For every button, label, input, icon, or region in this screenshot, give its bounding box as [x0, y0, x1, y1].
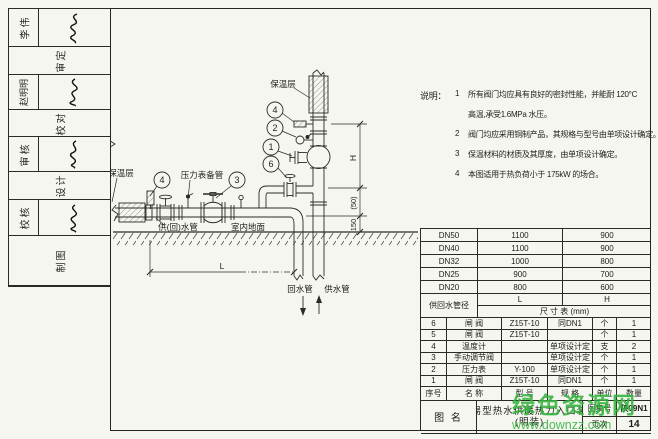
l-dimension-line	[147, 240, 297, 277]
signature-scribble-icon	[63, 12, 87, 44]
titleblock-role-text: 审定	[52, 49, 67, 73]
table-cell: 1	[617, 376, 651, 388]
titleblock-name: 赵明明	[9, 75, 39, 109]
table-cell: Z15T-10	[502, 318, 548, 330]
table-cell: 单项设计定	[548, 341, 593, 353]
table-header-rows: 供回水管径 L H 尺 寸 表 (mm)	[421, 294, 651, 318]
table-cell: 同DN1	[548, 318, 593, 330]
callout-number: 3	[234, 175, 239, 185]
page-number-label: 页次	[583, 417, 617, 434]
table-row: DN50 1100 900	[421, 229, 651, 242]
titleblock-name-text: 李伟	[16, 16, 31, 40]
riser-insulation-jacket	[309, 76, 328, 113]
table-row: 尺 寸 表 (mm)	[478, 306, 651, 318]
table-corner-header: 供回水管径	[421, 294, 478, 318]
titleblock-role: 校对	[9, 110, 110, 136]
tables-block: DN50 1100 900 DN40 1100 900 DN32 1000 80…	[420, 228, 651, 431]
dimension-table: DN50 1100 900 DN40 1100 900 DN32 1000 80…	[421, 229, 651, 318]
table-row: L H	[478, 294, 651, 306]
titleblock-role: 设计	[9, 172, 110, 199]
table-cell: DN20	[421, 281, 478, 294]
table-col-header-h: H	[563, 294, 651, 306]
table-cell: DN25	[421, 268, 478, 281]
table-cell: 2	[617, 341, 651, 353]
table-cell: 支	[593, 341, 617, 353]
table-cell: 900	[478, 268, 563, 281]
callout-number: 1	[268, 142, 273, 152]
callout-number: 6	[268, 159, 273, 169]
signature-scribble-icon	[63, 77, 87, 107]
note-3-text: 保温材料的材质及其厚度，由单项设计确定。	[468, 149, 622, 160]
flange-pair	[179, 205, 182, 220]
note-2-number: 2	[455, 129, 459, 138]
table-header-row: 序号 名 称 型 号 规 格 单位 数量	[421, 387, 651, 401]
note-2-text: 阀门均应采用铜制产品，其规格与型号由单项设计确定。	[468, 129, 658, 140]
titleblock-name-text: 校核	[16, 206, 31, 230]
titleblock-role: 审定	[9, 47, 110, 74]
page-number-row: 页次 14	[583, 417, 651, 434]
bypass-branch-pipe	[259, 186, 313, 208]
table-col-header: 型 号	[502, 387, 548, 401]
table-cell: DN40	[421, 242, 478, 255]
label-return-pipe: 回水管	[287, 284, 313, 294]
titleblock-row: 校核	[9, 200, 110, 236]
gate-valve-riser	[290, 151, 307, 164]
table-row: 4 温度计 单项设计定 支 2	[421, 341, 651, 353]
titleblock-role-text: 校对	[52, 111, 67, 135]
table-cell: 个	[593, 330, 617, 342]
title-bar-right: 图集号 陕09N1 页次 14	[583, 401, 651, 434]
titleblock-row: 审核	[9, 137, 110, 172]
table-cell: 单项设计定	[548, 364, 593, 376]
note-4-text: 本图适用于热负荷小于 175kW 的场合。	[468, 169, 603, 180]
titleblock-role-text: 制图	[52, 249, 67, 273]
pipe-insulation-jacket	[119, 203, 145, 222]
table-cell: 个	[593, 364, 617, 376]
table-row: DN32 1000 800	[421, 255, 651, 268]
table-col-header: 序号	[421, 387, 447, 401]
titleblock-row: 制图	[9, 236, 110, 286]
table-cell: 手动调节阀	[447, 353, 502, 365]
titleblock-name-text: 赵明明	[17, 78, 30, 105]
titleblock-row: 设计	[9, 172, 110, 200]
table-cell: 6	[421, 318, 447, 330]
piping-diagram: 4 3 4 2 1 6 保温层 保温层 压力表备管 供(回)水管 室内地面 回水…	[110, 8, 422, 431]
wall-break-icon	[110, 134, 115, 154]
page-number-value: 14	[617, 417, 651, 434]
table-cell: 压力表	[447, 364, 502, 376]
table-row: DN25 900 700	[421, 268, 651, 281]
table-cell: 4	[421, 341, 447, 353]
callout-number: 4	[159, 175, 164, 185]
table-col-header: 数量	[617, 387, 651, 401]
dim-l: L	[220, 261, 225, 271]
table-cell: 800	[478, 281, 563, 294]
signature	[39, 200, 110, 235]
signature	[39, 137, 110, 171]
table-cell: 温度计	[447, 341, 502, 353]
titleblock-name: 李伟	[9, 9, 39, 46]
table-cell: Z15T-10	[502, 376, 548, 388]
table-cell: 800	[563, 255, 651, 268]
pipe-coupling	[146, 205, 152, 220]
table-row: 6 闸 阀 Z15T-10 同DN1 个 1	[421, 318, 651, 330]
note-1-number: 1	[455, 89, 459, 98]
label-supply-pipe: 供水管	[324, 284, 350, 294]
thermometer-riser	[294, 121, 313, 127]
table-col-header: 规 格	[548, 387, 593, 401]
notes-heading: 说明：	[420, 89, 446, 102]
table-cell: Y-100	[502, 364, 548, 376]
table-cell	[548, 330, 593, 342]
riser-valve-body	[307, 146, 330, 169]
table-cell: 闸 阀	[447, 330, 502, 342]
table-cell: 1100	[478, 242, 563, 255]
table-cell: DN32	[421, 255, 478, 268]
signature-scribble-icon	[63, 203, 87, 233]
drawing-title-line1: 简易型热水供暖热力入口装置	[477, 406, 583, 417]
table-row: 3 手动调节阀 单项设计定 个 1	[421, 353, 651, 365]
dim-h: H	[348, 155, 358, 161]
table-cell: 同DN1	[548, 376, 593, 388]
table-row: DN20 800 600	[421, 281, 651, 294]
table-header-right: L H 尺 寸 表 (mm)	[478, 294, 651, 318]
gauge-tap-second	[239, 195, 243, 208]
drawing-title-line2: (明装)	[515, 417, 544, 428]
label-indoor-floor: 室内地面	[231, 222, 266, 232]
dim-150: 150	[349, 219, 358, 232]
label-supply-return-pipe: 供(回)水管	[158, 222, 198, 232]
note-4-number: 4	[455, 169, 459, 178]
table-cell: 个	[593, 376, 617, 388]
supply-flow-arrow	[316, 295, 322, 314]
signature	[39, 75, 110, 109]
gate-valve-bypass	[284, 174, 296, 197]
note-1-line2: 高温,承受1.6MPa 水压。	[468, 109, 552, 120]
table-cell: 700	[563, 268, 651, 281]
signature	[39, 9, 110, 46]
pressure-gauge	[296, 134, 313, 144]
callout-number: 2	[272, 123, 277, 133]
titleblock-row: 校对	[9, 110, 110, 137]
table-cell: 1	[617, 353, 651, 365]
table-cell: Z15T-10	[502, 330, 548, 342]
title-block-sidebar: 李伟 审定 赵明明 校对 审核 设计 校核 制图	[8, 8, 110, 287]
table-cell: 900	[563, 242, 651, 255]
table-title: 尺 寸 表 (mm)	[478, 306, 651, 318]
table-cell: 单项设计定	[548, 353, 593, 365]
vertical-dimension-lines	[306, 121, 367, 235]
note-3-number: 3	[455, 149, 459, 158]
titleblock-row: 李伟	[9, 9, 110, 47]
pressure-gauge-spare-tap	[186, 194, 193, 209]
table-cell	[502, 353, 548, 365]
table-cell: 1	[617, 330, 651, 342]
atlas-number-row: 图集号 陕09N1	[583, 401, 651, 418]
table-cell: 3	[421, 353, 447, 365]
titleblock-row: 赵明明	[9, 75, 110, 110]
atlas-number-label: 图集号	[583, 401, 617, 418]
table-cell: 2	[421, 364, 447, 376]
table-cell: 个	[593, 318, 617, 330]
titleblock-name: 校核	[9, 200, 39, 235]
table-col-header: 名 称	[447, 387, 502, 401]
table-cell: DN50	[421, 229, 478, 242]
title-bar-label: 图 名	[421, 401, 477, 434]
table-cell: 1	[421, 376, 447, 388]
callout-number: 4	[272, 105, 277, 115]
thermometer-return	[147, 191, 154, 209]
riser-valve-flanges	[310, 146, 327, 168]
table-row: DN40 1100 900	[421, 242, 651, 255]
table-row: 2 压力表 Y-100 单项设计定 个 1	[421, 364, 651, 376]
table-row: 1 闸 阀 Z15T-10 同DN1 个 1	[421, 376, 651, 388]
indoor-floor-line	[113, 232, 418, 245]
titleblock-row: 审定	[9, 47, 110, 75]
table-cell: 900	[563, 229, 651, 242]
titleblock-name-text: 审核	[16, 142, 31, 166]
titleblock-name: 审核	[9, 137, 39, 171]
table-cell: 闸 阀	[447, 318, 502, 330]
table-cell: 个	[593, 353, 617, 365]
titleblock-role: 制图	[9, 236, 110, 285]
label-insulation-riser: 保温层	[270, 79, 296, 89]
drawing-title-bar: 图 名 简易型热水供暖热力入口装置 (明装) 图集号 陕09N1 页次 14	[421, 401, 651, 434]
table-cell	[502, 341, 548, 353]
drawing-title: 简易型热水供暖热力入口装置 (明装)	[477, 401, 583, 434]
table-cell: 1	[617, 318, 651, 330]
table-cell: 1	[617, 364, 651, 376]
table-cell: 1100	[478, 229, 563, 242]
titleblock-role-text: 设计	[52, 174, 67, 198]
label-gauge-spare-pipe: 压力表备管	[181, 170, 224, 180]
flange-pair	[231, 205, 234, 220]
table-cell: 600	[563, 281, 651, 294]
dim-50: (50)	[349, 196, 358, 210]
note-1-line1: 所有阀门均应具有良好的密封性能，并能耐 120°C	[468, 89, 637, 100]
table-col-header: 单位	[593, 387, 617, 401]
atlas-number-value: 陕09N1	[617, 401, 651, 418]
table-cell: 闸 阀	[447, 376, 502, 388]
material-table: 6 闸 阀 Z15T-10 同DN1 个 1 5 闸 阀 Z15T-10 个 1…	[421, 318, 651, 401]
signature-scribble-icon	[63, 139, 87, 169]
table-row: 5 闸 阀 Z15T-10 个 1	[421, 330, 651, 342]
label-insulation-left: 保温层	[110, 168, 134, 178]
table-cell: 1000	[478, 255, 563, 268]
table-col-header-l: L	[478, 294, 563, 306]
table-cell: 5	[421, 330, 447, 342]
return-flow-arrow	[300, 296, 306, 316]
